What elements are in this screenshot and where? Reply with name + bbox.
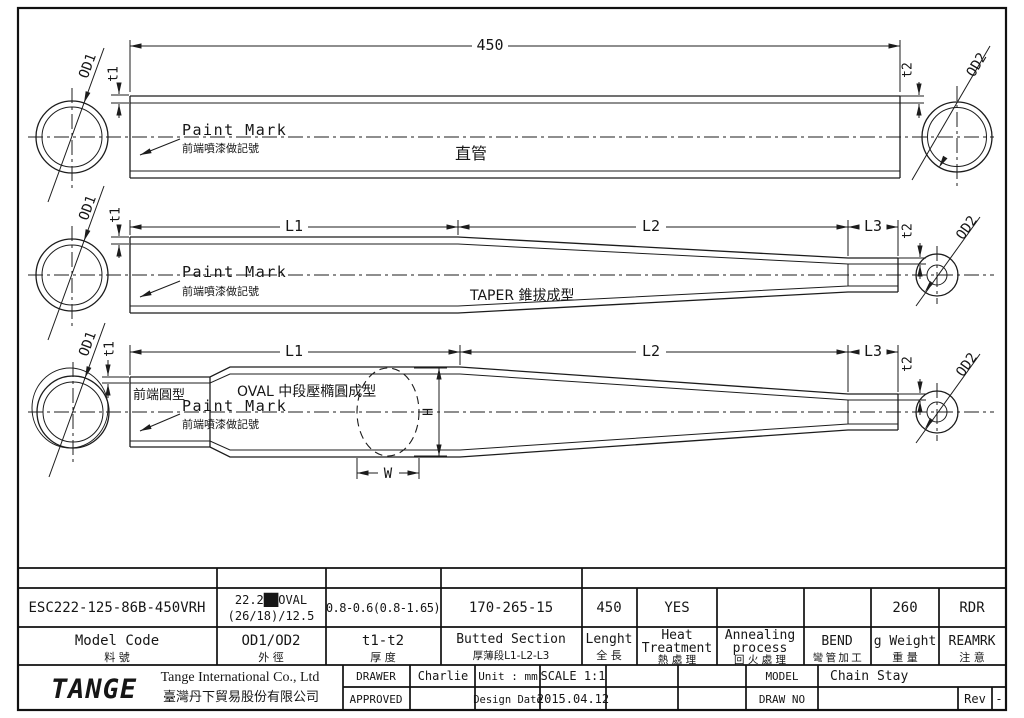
t1-label: t1 — [107, 66, 122, 82]
od2-label: OD2 — [953, 350, 981, 380]
butted-section-value: 170-265-15 — [469, 600, 553, 616]
t2-label: t2 — [901, 62, 916, 78]
l-dimensions — [130, 220, 898, 256]
annealing-header-zh: 回 火 處 理 — [734, 653, 787, 666]
length-header-zh: 全 長 — [596, 648, 622, 662]
drawer-value: Charlie — [418, 669, 469, 683]
rev-label: Rev — [964, 692, 986, 706]
bend-header-zh: 彎 管 加 工 — [813, 651, 862, 664]
length-dimension — [130, 40, 900, 92]
od1-label: OD1 — [76, 193, 100, 222]
t1-dimension — [111, 84, 129, 118]
length-dim-text: 450 — [476, 36, 503, 54]
od1-label: OD1 — [76, 329, 100, 358]
od-value-line1: 22.2██OVAL — [235, 592, 307, 607]
od2-label: OD2 — [953, 213, 981, 243]
weight-value: 260 — [892, 600, 917, 616]
paint-mark-label-zh: 前端噴漆做記號 — [182, 284, 259, 298]
leader-arrowhead — [925, 418, 934, 429]
paint-mark-leader — [140, 414, 180, 431]
butted-section-header: Butted Section — [456, 632, 566, 647]
butted-section-header-zh: 厚薄段L1-L2-L3 — [473, 649, 550, 662]
extension-stubs — [111, 95, 129, 103]
l1-text: L1 — [285, 342, 303, 360]
design-date-label: Design Date — [473, 694, 543, 706]
w-text: W — [384, 466, 393, 482]
extension-stubs — [111, 237, 129, 244]
h-text: H — [422, 408, 437, 416]
unit-label: Unit : mm — [478, 670, 538, 683]
leader-arrowhead — [85, 366, 91, 378]
drawing-taper-tube: OD1 t1 L1 L2 L3 Paint Mark 前端噴漆做記號 TAPER… — [28, 186, 994, 340]
t2-dimension — [900, 82, 924, 118]
thickness-header-zh: 厚 度 — [370, 650, 396, 664]
t1-dimension — [111, 225, 129, 258]
t1-label: t1 — [103, 341, 118, 357]
drawing-oval-tube: OD1 t1 L1 L2 L3 W — [28, 323, 994, 482]
model-code-header: Model Code — [75, 633, 159, 649]
company-name-zh: 臺灣丹下貿易股份有限公司 — [163, 690, 319, 705]
paint-mark-leader — [140, 281, 180, 297]
leader-arrowhead — [84, 229, 90, 241]
paint-mark-label-zh: 前端噴漆做記號 — [182, 141, 259, 155]
paint-mark-label-zh: 前端噴漆做記號 — [182, 417, 259, 431]
paint-mark-label: Paint Mark — [182, 397, 287, 415]
thickness-value: 0.8-0.6(0.8-1.65) — [326, 601, 440, 615]
diameter-leader — [48, 48, 104, 202]
heat-header-zh: 熱 處 理 — [658, 653, 697, 666]
remark-header-zh: 注 意 — [959, 650, 985, 664]
cad-canvas: OD1 t1 450 Paint Mark 前端噴漆做記號 直管 t2 — [0, 0, 1024, 718]
length-value: 450 — [596, 600, 621, 616]
l3-text: L3 — [864, 342, 882, 360]
model-code-header-zh: 料 號 — [104, 650, 130, 664]
model-value: Chain Stay — [830, 669, 908, 684]
od1-label: OD1 — [76, 51, 100, 80]
drawing-straight-tube: OD1 t1 450 Paint Mark 前端噴漆做記號 直管 t2 — [28, 36, 994, 202]
extension-lines — [130, 220, 898, 256]
t1-label: t1 — [109, 207, 124, 223]
title-block: TANGE Tange International Co., Ltd 臺灣丹下貿… — [51, 665, 1006, 710]
bend-header: BEND — [821, 634, 852, 649]
thickness-header: t1-t2 — [362, 633, 404, 649]
leader-arrowhead — [84, 91, 90, 103]
od2-label: OD2 — [964, 50, 991, 80]
heat-treatment-value: YES — [664, 600, 689, 616]
rev-value: - — [995, 692, 1002, 706]
remark-header: REAMRK — [949, 634, 996, 649]
model-code-value: ESC222-125-86B-450VRH — [28, 600, 205, 616]
scale-value: SCALE 1:1 — [540, 669, 605, 683]
tange-logo: TANGE — [51, 674, 137, 705]
t1-dimension — [102, 360, 129, 398]
leader-arrowhead — [925, 281, 934, 292]
cross-section-od1 — [36, 186, 108, 340]
paint-mark-label: Paint Mark — [182, 263, 287, 281]
straight-tube-label: 直管 — [455, 144, 487, 163]
drawno-label: DRAW NO — [759, 693, 805, 706]
l1-text: L1 — [285, 217, 303, 235]
l3-text: L3 — [864, 217, 882, 235]
extension-stubs — [900, 96, 924, 103]
company-name-en: Tange International Co., Ltd — [161, 670, 320, 685]
t2-label: t2 — [901, 223, 916, 239]
extension-stubs — [102, 377, 129, 383]
paint-mark-label: Paint Mark — [182, 121, 287, 139]
diameter-leader — [49, 323, 105, 477]
design-date-value: 2015.04.12 — [537, 692, 609, 706]
remark-value: RDR — [959, 600, 985, 616]
front-round-label: 前端圓型 — [133, 387, 185, 403]
extension-lines — [130, 40, 900, 92]
cross-section-od1 — [32, 323, 109, 477]
taper-label: TAPER 錐拔成型 — [469, 288, 575, 304]
drawer-label: DRAWER — [356, 670, 396, 683]
approved-label: APPROVED — [350, 693, 403, 706]
paint-mark-leader — [140, 139, 180, 155]
drawing-sheet: OD1 t1 450 Paint Mark 前端噴漆做記號 直管 t2 — [0, 0, 1024, 718]
cross-section-od1 — [36, 48, 108, 202]
model-label: MODEL — [765, 670, 798, 683]
weight-header: g Weight — [874, 634, 937, 649]
od-header-zh: 外 徑 — [258, 651, 284, 664]
l2-text: L2 — [642, 217, 660, 235]
spec-table: ESC222-125-86B-450VRH 22.2██OVAL (26/18)… — [18, 568, 1006, 666]
l2-text: L2 — [642, 342, 660, 360]
od-value-line2: (26/18)/12.5 — [228, 609, 315, 623]
t2-label: t2 — [901, 356, 916, 372]
weight-header-zh: 重 量 — [892, 650, 918, 664]
length-header: Lenght — [586, 632, 633, 647]
od-header: OD1/OD2 — [241, 633, 300, 649]
